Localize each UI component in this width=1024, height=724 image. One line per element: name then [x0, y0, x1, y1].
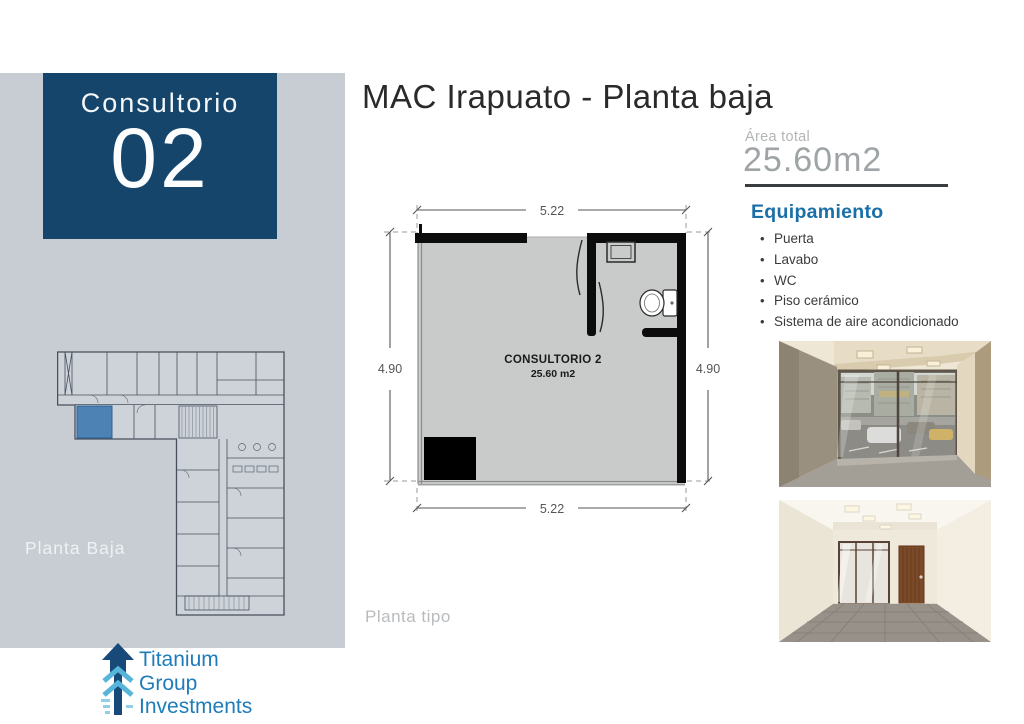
divider-line — [745, 184, 948, 187]
highlighted-room-02 — [77, 406, 112, 438]
equipment-item: Piso cerámico — [759, 291, 959, 312]
equipment-item: Puerta — [759, 229, 959, 250]
equipment-item: WC — [759, 271, 959, 292]
wall-top-left — [415, 233, 527, 243]
bathroom-partition-wall — [587, 233, 596, 336]
equipment-list: Puerta Lavabo WC Piso cerámico Sistema d… — [759, 229, 959, 333]
dimension-label-left: 4.90 — [378, 362, 402, 376]
render-photo-interior — [779, 500, 991, 642]
unit-badge: Consultorio 02 — [43, 73, 277, 239]
render-photo-storefront — [779, 341, 991, 487]
unit-badge-number: 02 — [43, 119, 277, 199]
dimension-label-right: 4.90 — [696, 362, 720, 376]
logo-text-line: Investments — [139, 695, 252, 719]
building-overview-plan — [57, 350, 285, 616]
building-outline — [58, 352, 284, 615]
logo-wordmark: Titanium Group Investments — [139, 648, 252, 719]
equipment-item: Lavabo — [759, 250, 959, 271]
logo-text-line: Group — [139, 672, 252, 696]
equipment-item: Sistema de aire acondicionado — [759, 312, 959, 333]
dimension-label-bottom: 5.22 — [540, 502, 564, 516]
wall-right — [677, 233, 686, 483]
wall-stub — [419, 224, 422, 234]
dimension-label-top: 5.22 — [540, 204, 564, 218]
logo-building-icon — [100, 643, 136, 717]
unit-floor-plan: 5.22 5.22 4.90 4.90 — [365, 195, 730, 525]
company-logo: Titanium Group Investments — [100, 643, 252, 719]
plan-type-label: Planta tipo — [365, 607, 451, 627]
room-name-label: CONSULTORIO 2 — [504, 354, 601, 366]
equipment-heading: Equipamiento — [751, 201, 884, 224]
area-total-value: 25.60m2 — [743, 141, 882, 180]
slide-page: Planta Baja Titanium Group Investments C… — [0, 0, 1024, 724]
service-shaft-block — [424, 437, 476, 480]
bathroom-bottom-wall — [642, 328, 680, 337]
wall-top-right — [587, 233, 686, 243]
floor-label: Planta Baja — [25, 538, 126, 559]
page-title: MAC Irapuato - Planta baja — [362, 78, 773, 116]
logo-text-line: Titanium — [139, 648, 252, 672]
toilet-fixture — [640, 290, 677, 316]
sink-fixture — [607, 242, 635, 262]
room-area-label: 25.60 m2 — [531, 368, 576, 380]
